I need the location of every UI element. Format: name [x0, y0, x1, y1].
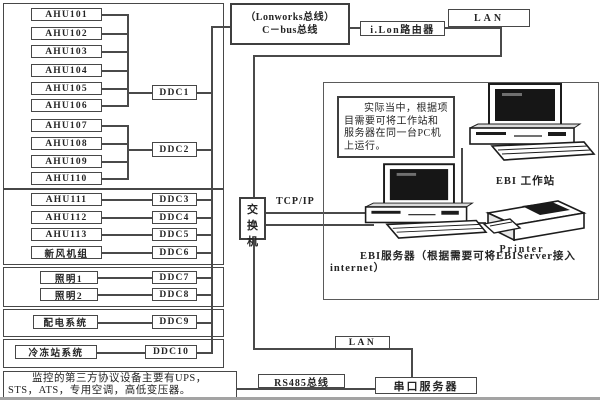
device-box-power-system: 配电系统 — [33, 315, 98, 329]
lan-label-box-top: LAN — [448, 9, 530, 27]
connector-line — [102, 105, 127, 107]
controller-box-ddc4: DDC4 — [152, 211, 197, 224]
cbus-line — [211, 26, 213, 353]
connector-line — [102, 70, 127, 72]
connector-line — [98, 277, 152, 279]
rs485-label-box: RS485总线 — [258, 374, 345, 388]
ilon-router-box: i.Lon路由器 — [360, 21, 445, 36]
lan-label-box-bottom: LAN — [335, 336, 390, 349]
connector-line — [211, 26, 230, 28]
connector-line — [102, 88, 127, 90]
connector-line — [98, 294, 152, 296]
connector-line — [102, 252, 152, 254]
device-box-ahu109: AHU109 — [31, 155, 102, 168]
connector-line — [127, 92, 152, 94]
device-box-chiller-system: 冷冻站系统 — [15, 345, 97, 359]
ebi-workstation-graphic — [456, 84, 594, 168]
third-party-devices-note: 监控的第三方协议设备主要有UPS，STS，ATS，专用空调，高低变压器。 — [8, 373, 230, 396]
connector-line — [500, 27, 502, 56]
controller-box-ddc3: DDC3 — [152, 193, 197, 206]
device-box-ahu111: AHU111 — [31, 193, 102, 206]
ebi-workstation-label: EBI 工作站 — [478, 176, 573, 188]
printer-graphic — [482, 197, 588, 245]
device-box-ahu113: AHU113 — [31, 228, 102, 241]
connector-line — [102, 143, 127, 145]
connector-line — [102, 178, 127, 180]
controller-box-ddc6: DDC6 — [152, 246, 197, 259]
device-box-ahu104: AHU104 — [31, 64, 102, 77]
device-box-ahu106: AHU106 — [31, 99, 102, 112]
connector-line — [102, 51, 127, 53]
controller-box-ddc8: DDC8 — [152, 288, 197, 301]
device-box-ahu103: AHU103 — [31, 45, 102, 58]
controller-box-ddc2: DDC2 — [152, 142, 197, 157]
device-box-ahu101: AHU101 — [31, 8, 102, 21]
ebi-server-graphic — [352, 164, 486, 246]
connector-line — [127, 149, 152, 151]
collector-line-ddc2 — [127, 125, 129, 180]
connector-line — [253, 240, 255, 349]
device-box-lighting1: 照明1 — [40, 271, 98, 284]
tcpip-label: TCP/IP — [276, 196, 315, 207]
device-box-ahu107: AHU107 — [31, 119, 102, 132]
connector-line — [102, 199, 152, 201]
connector-line — [411, 348, 413, 377]
third-party-devices-box: 监控的第三方协议设备主要有UPS，STS，ATS，专用空调，高低变压器。 — [3, 371, 237, 399]
device-box-lighting2: 照明2 — [40, 288, 98, 301]
connector-line — [445, 27, 502, 29]
lonworks-bus-label-box: （Lonworks总线） C－bus总线 — [230, 3, 350, 45]
controller-box-ddc9: DDC9 — [152, 315, 197, 329]
connector-line — [102, 33, 127, 35]
device-box-ahu108: AHU108 — [31, 137, 102, 150]
controller-box-ddc7: DDC7 — [152, 271, 197, 284]
controller-box-ddc5: DDC5 — [152, 228, 197, 241]
device-box-ahu105: AHU105 — [31, 82, 102, 95]
device-box-ahu110: AHU110 — [31, 172, 102, 185]
connector-line — [97, 352, 145, 354]
lan-link-line — [253, 55, 502, 57]
connector-line — [102, 217, 152, 219]
controller-box-ddc1: DDC1 — [152, 85, 197, 100]
device-box-ahu102: AHU102 — [31, 27, 102, 40]
network-switch-box: 交 换 机 — [239, 197, 266, 240]
diagram-canvas: AHU101 AHU102 AHU103 AHU104 AHU105 AHU10… — [0, 0, 600, 400]
device-box-ahu112: AHU112 — [31, 211, 102, 224]
ebi-server-caption: EBI服务器（根据需要可将EBIServer接入internet） — [330, 251, 586, 275]
controller-box-ddc10: DDC10 — [145, 345, 197, 359]
connector-line — [102, 14, 127, 16]
connector-line — [102, 125, 127, 127]
connector-line — [98, 322, 152, 324]
connector-line — [253, 55, 255, 197]
connector-line — [102, 234, 152, 236]
device-box-fresh-air-unit: 新风机组 — [31, 246, 102, 259]
serial-server-box: 串口服务器 — [375, 377, 477, 394]
connector-line — [350, 27, 360, 29]
connector-line — [102, 161, 127, 163]
note-box: 实际当中，根据项目需要可将工作站和服务器在同一台PC机上运行。 — [337, 96, 455, 158]
